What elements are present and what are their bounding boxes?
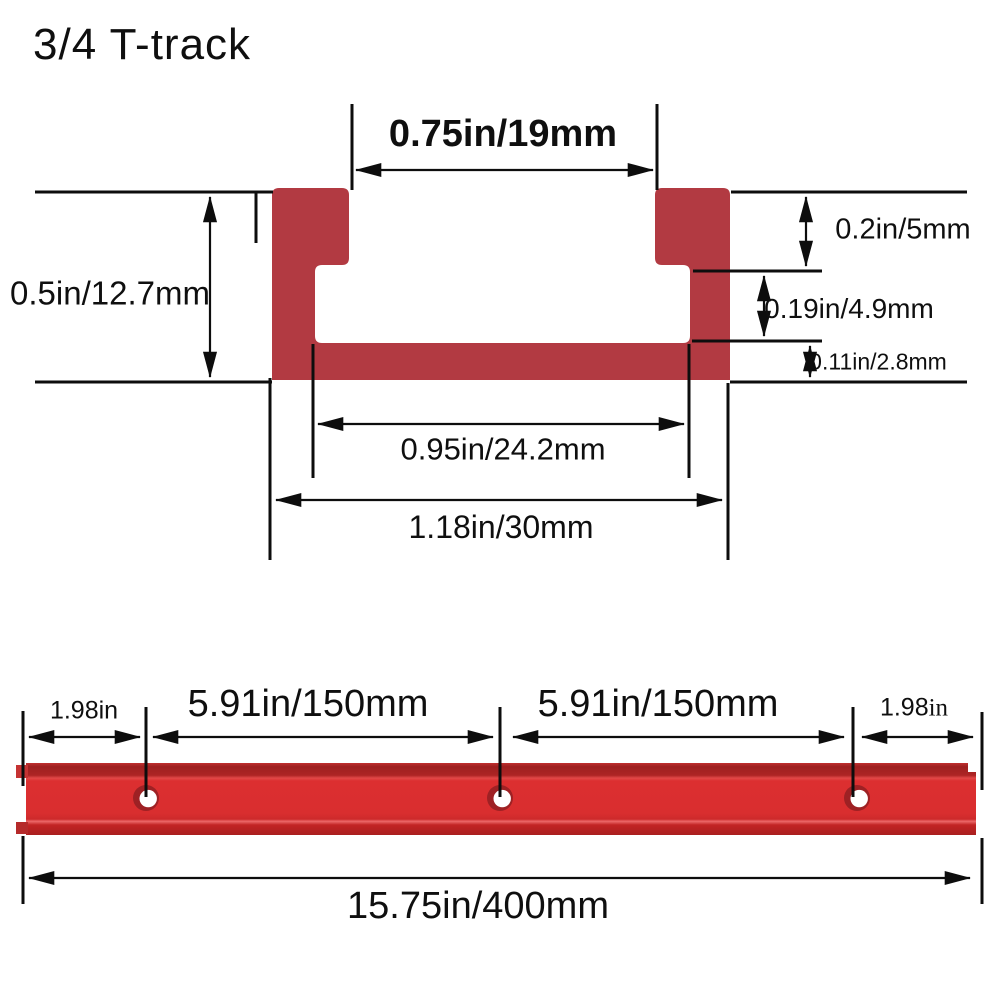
diagram-title: 3/4 T-track bbox=[33, 20, 251, 70]
dim-left-end-offset-label: 1.98in bbox=[50, 699, 118, 724]
track-right-end-step bbox=[968, 762, 977, 772]
cross-section-extension-lines bbox=[35, 104, 967, 560]
dim-top-opening-label: 0.75in/19mm bbox=[389, 115, 617, 153]
mounting-hole-right bbox=[844, 785, 870, 811]
dim-hole-spacing-1-label: 5.91in/150mm bbox=[188, 685, 429, 723]
dim-lip-depth-label: 0.2in/5mm bbox=[835, 216, 970, 245]
dim-right-end-offset-label: 1.98in bbox=[880, 696, 948, 721]
track-left-bottom-lip bbox=[16, 822, 28, 834]
dim-right-end-offset-unit: in bbox=[929, 695, 948, 722]
dim-height-label: 0.5in/12.7mm bbox=[10, 277, 210, 310]
dim-hole-spacing-2-label: 5.91in/150mm bbox=[538, 685, 779, 723]
dim-inner-width-label: 0.95in/24.2mm bbox=[400, 434, 605, 465]
dim-side-gap-label: 0.19in/4.9mm bbox=[764, 295, 934, 323]
cross-section-group bbox=[35, 104, 967, 560]
dim-right-end-offset-value: 1.98 bbox=[880, 694, 929, 722]
dim-outer-width-label: 1.18in/30mm bbox=[409, 511, 594, 543]
t-track-profile-shape bbox=[272, 188, 730, 380]
t-track-dimension-diagram: 3/4 T-track 0.75in/19mm 0.5in/12.7mm 0.2… bbox=[0, 0, 1001, 1001]
side-view-group bbox=[16, 707, 982, 904]
dim-total-length-label: 15.75in/400mm bbox=[347, 887, 609, 925]
dim-base-thickness-label: 0.11in/2.8mm bbox=[809, 351, 947, 374]
